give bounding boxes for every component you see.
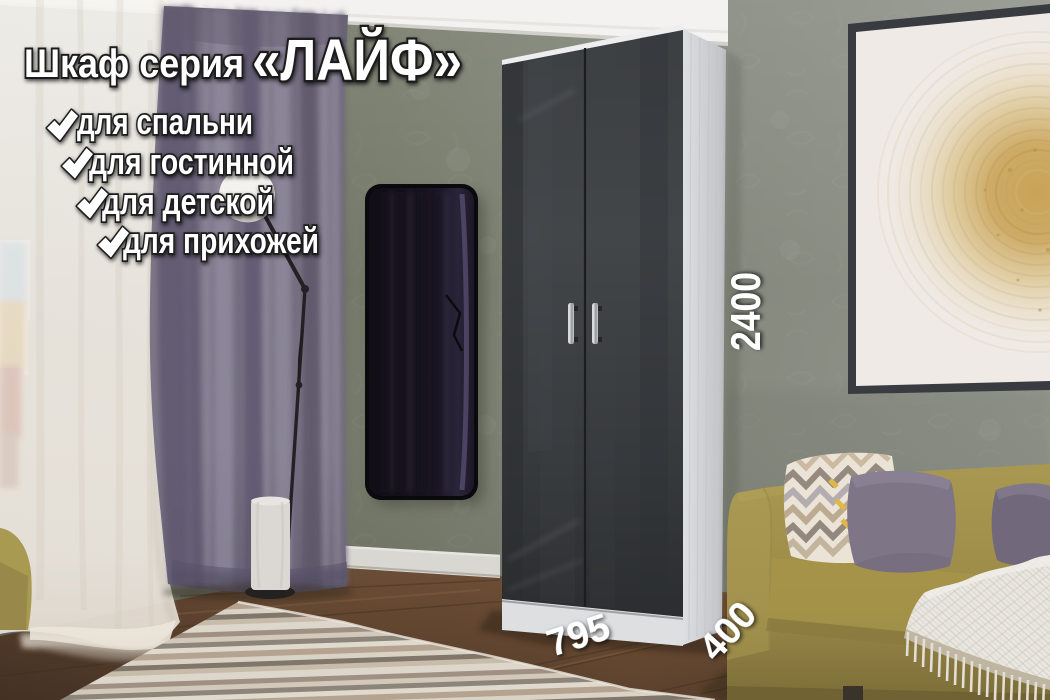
svg-text:для спальни: для спальни bbox=[77, 101, 253, 142]
svg-text:Шкаф серия: Шкаф серия bbox=[24, 42, 244, 86]
svg-text:«ЛАЙФ»: «ЛАЙФ» bbox=[252, 28, 462, 93]
svg-text:для гостинной: для гостинной bbox=[89, 141, 294, 182]
svg-text:2400: 2400 bbox=[722, 272, 769, 351]
svg-text:для прихожей: для прихожей bbox=[123, 220, 319, 261]
svg-text:для детской: для детской bbox=[102, 181, 274, 222]
